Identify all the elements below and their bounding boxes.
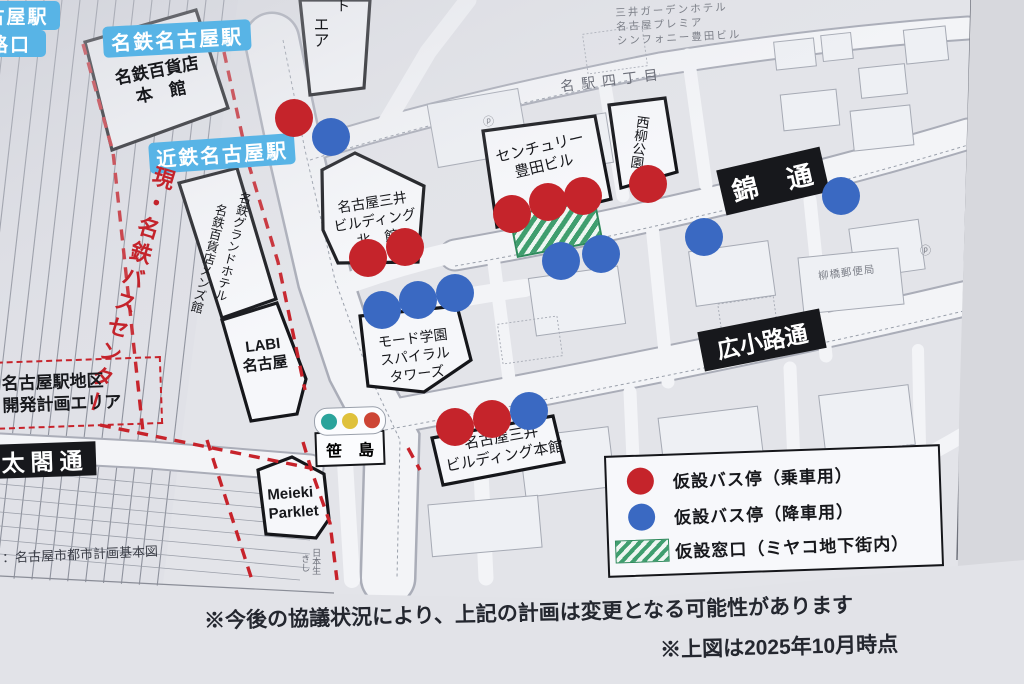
temporary-window-marker-icon: [615, 539, 670, 564]
alighting-stop-marker: [510, 392, 548, 430]
alighting-stop-marker: [436, 274, 474, 312]
traffic-light-icon: [314, 406, 387, 436]
top-partial-fragment: ト: [336, 0, 350, 16]
alighting-stop-marker: [582, 235, 620, 273]
traffic-light-red-dot: [363, 412, 380, 429]
legend-row-alighting: 仮設バス停（降車用）: [608, 493, 941, 532]
as-of-note: ※上図は2025年10月時点: [660, 628, 899, 664]
alighting-stop-marker: [363, 291, 401, 329]
redevelopment-area-box: 名古屋駅地区 開発計画エリア: [0, 356, 163, 430]
meieki-parklet-label: Meieki Parklet: [267, 482, 320, 524]
traffic-light-green-dot: [320, 413, 337, 430]
alighting-stop-marker: [822, 177, 860, 215]
boarding-stop-marker-icon: [626, 467, 654, 495]
traffic-light-yellow-dot: [342, 413, 359, 430]
fragment-nihonsei: 日本生: [310, 548, 322, 582]
alighting-stop-marker: [312, 118, 350, 156]
mode-gakuen-label: モード学園 スパイラル タワーズ: [365, 324, 465, 389]
legend-row-boarding: 仮設バス停（乗車用）: [606, 457, 939, 496]
boarding-stop-marker: [629, 165, 667, 203]
top-partial-building-label: エア: [308, 10, 328, 54]
boarding-stop-marker: [386, 228, 424, 266]
labi-label: LABI 名古屋: [230, 332, 298, 378]
alighting-stop-marker-icon: [627, 503, 655, 531]
alighting-stop-marker: [399, 281, 437, 319]
mitsui-garden-hotel-label: 三井ガーデンホテル 名古屋プレミア シンフォニー豊田ビル: [615, 0, 742, 49]
boarding-stop-marker: [275, 99, 313, 137]
fragment-kishi: きし: [299, 554, 311, 580]
boarding-stop-marker: [436, 408, 474, 446]
station-label-partial-nagoya: 古屋駅: [0, 1, 60, 30]
station-label-partial-exit: 路口: [0, 30, 46, 57]
legend: 仮設バス停（乗車用） 仮設バス停（降車用） 仮設窓口（ミヤコ地下街内）: [604, 444, 944, 578]
boarding-stop-marker: [564, 177, 602, 215]
bus-stop-plan-map: ⓟ ⓟ 古屋駅 路口 名鉄名古屋駅 近鉄名古屋駅 現・名鉄バスセンター 名鉄百貨…: [0, 0, 1024, 684]
boarding-stop-marker: [493, 195, 531, 233]
boarding-stop-marker: [349, 239, 387, 277]
legend-row-window: 仮設窓口（ミヤコ地下街内）: [609, 528, 942, 565]
alighting-stop-marker: [542, 242, 580, 280]
boarding-stop-marker: [473, 400, 511, 438]
taiko-street-label: 太閤通: [0, 441, 97, 479]
boarding-stop-marker: [529, 183, 567, 221]
alighting-stop-marker: [685, 218, 723, 256]
